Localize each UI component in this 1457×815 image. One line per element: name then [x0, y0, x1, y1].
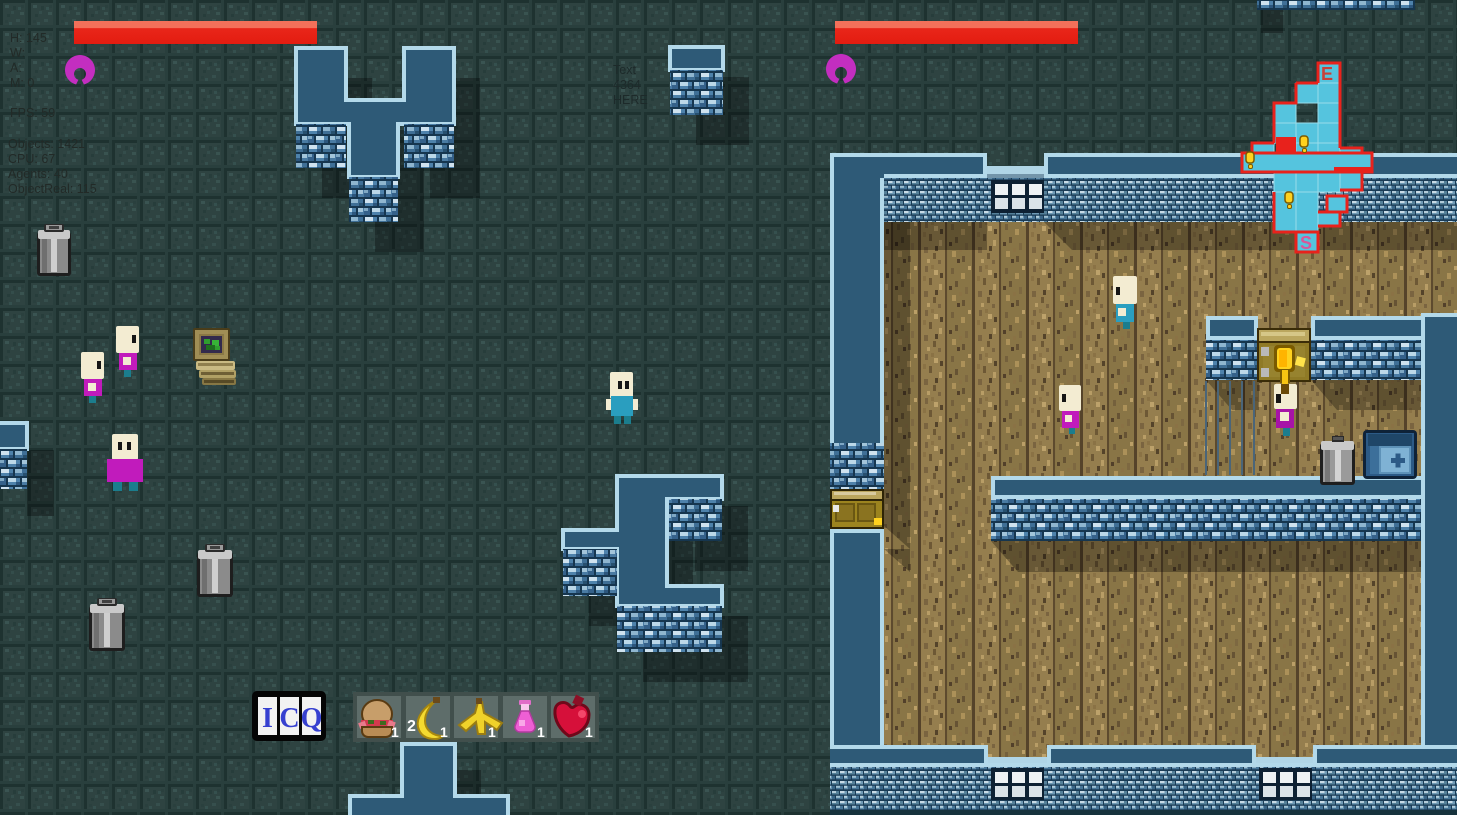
svg-text:CPU: 67: CPU: 67: [8, 152, 55, 166]
svg-text:1: 1: [391, 724, 399, 740]
svg-text:C: C: [279, 703, 299, 734]
svg-text:Text: Text: [613, 63, 636, 77]
svg-text:H: 145: H: 145: [10, 31, 47, 45]
svg-text:Q: Q: [301, 703, 323, 734]
svg-text:1: 1: [537, 724, 545, 740]
svg-text:1: 1: [585, 724, 593, 740]
svg-text:Agents: 40: Agents: 40: [8, 167, 68, 181]
svg-text:1: 1: [488, 724, 496, 740]
svg-text:M: 0: M: 0: [10, 76, 34, 90]
svg-text:Objects: 1421: Objects: 1421: [8, 137, 85, 151]
svg-text:2: 2: [407, 718, 416, 735]
svg-text:S: S: [1300, 233, 1312, 253]
svg-text:W:: W:: [10, 46, 25, 60]
svg-text:4364: 4364: [613, 78, 641, 92]
svg-text:HERE: HERE: [613, 93, 648, 107]
svg-text:E: E: [1321, 64, 1333, 84]
svg-text:A:: A:: [10, 61, 22, 75]
svg-text:I: I: [262, 703, 273, 734]
svg-text:ObjectReal: 115: ObjectReal: 115: [8, 182, 97, 196]
svg-text:FPS: 59: FPS: 59: [10, 106, 55, 120]
svg-text:1: 1: [440, 724, 448, 740]
